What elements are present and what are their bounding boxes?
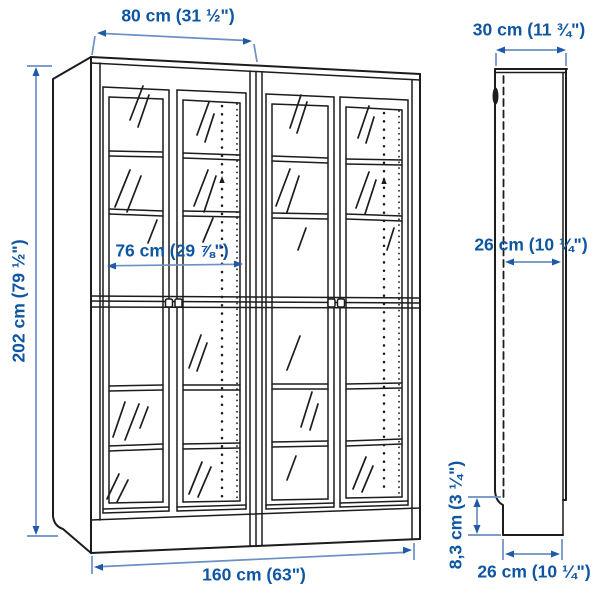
left-side-panel — [53, 57, 91, 553]
dim-base-depth-label: 26 cm (10 ¼") — [477, 562, 590, 583]
side-view-knob — [493, 88, 499, 105]
front-view — [53, 57, 420, 553]
door-knob-3 — [328, 299, 335, 307]
dim-single-unit-width — [92, 30, 257, 62]
side-view — [493, 69, 568, 535]
glass-door-2 — [177, 90, 246, 511]
shelf-pin-marker-left — [219, 176, 224, 183]
dim-total-width-label: 160 cm (63") — [202, 565, 306, 586]
dim-base-depth — [503, 539, 562, 560]
dim-depth-label: 30 cm (11 ¾") — [473, 20, 585, 41]
door-knob-2 — [175, 299, 182, 307]
glass-door-1 — [103, 87, 169, 513]
line-art-canvas — [0, 0, 600, 600]
dim-base-height-label: 8,3 cm (3 ¼") — [446, 461, 467, 570]
dim-single-unit-width-label: 80 cm (31 ½") — [121, 6, 234, 27]
door-knob-1 — [166, 299, 173, 307]
cabinet-frame — [91, 57, 420, 553]
door-knob-4 — [338, 299, 345, 307]
dim-inner-width — [107, 261, 243, 270]
dim-inner-depth — [505, 259, 561, 266]
dim-inner-width-label: 76 cm (29 ⅞") — [115, 241, 228, 262]
shelf-pin-marker-right — [381, 177, 386, 184]
dim-height-label: 202 cm (79 ½") — [9, 239, 30, 362]
dim-inner-depth-label: 26 cm (10 ¼") — [474, 235, 587, 256]
dim-base-height — [468, 497, 501, 535]
product-dimension-diagram: 80 cm (31 ½") 30 cm (11 ¾") 202 cm (79 ½… — [0, 0, 600, 600]
dim-depth — [496, 47, 566, 67]
